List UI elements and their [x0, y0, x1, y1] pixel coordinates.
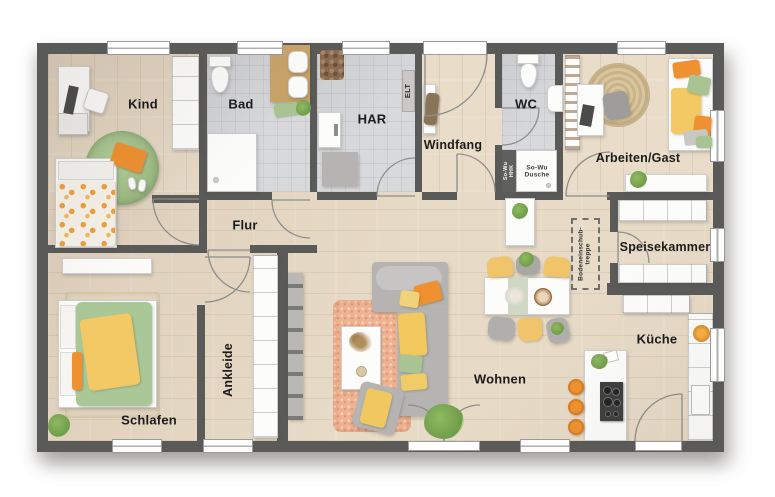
bad-shower: [207, 133, 257, 192]
window-kind: [107, 41, 170, 55]
label-wc: WC: [515, 98, 537, 113]
label-schlafen: Schlafen: [121, 414, 177, 429]
wall-har-windfang: [415, 54, 422, 192]
kind-bed-blanket: [57, 181, 115, 246]
har-washer-handle: [334, 124, 338, 136]
wohnen-media-panel: [288, 273, 303, 420]
label-har: HAR: [358, 113, 387, 128]
label-sowu-hhk: So-Wu HHK: [503, 162, 515, 180]
window-schlafen: [112, 439, 162, 453]
wohnen-pillow-yellow: [399, 290, 420, 308]
floorplan-canvas: KindBadHARWindfangWCArbeiten/GastFlurSpe…: [0, 0, 775, 497]
label-wohnen: Wohnen: [474, 373, 526, 388]
schlafen-shelf: [62, 258, 152, 274]
dining-bowl: [534, 288, 552, 306]
kueche-stool-3: [568, 419, 584, 435]
stove-knob-2: [613, 411, 619, 417]
label-flur: Flur: [232, 219, 257, 234]
wall-speisekammer-left-upper: [610, 200, 618, 232]
label-arbeiten-gast: Arbeiten/Gast: [596, 151, 681, 165]
entrance-door: [423, 41, 487, 55]
label-kind: Kind: [128, 98, 158, 113]
stove-burner-4: [613, 399, 621, 407]
label-speisekammer: Speisekammer: [620, 240, 711, 254]
wall-windfang-wc-upper: [495, 54, 502, 108]
kind-cabinet: [58, 113, 88, 135]
bad-shower-drain: [213, 177, 219, 183]
wall-kind-door-stub: [152, 195, 199, 203]
schlafen-pillow-1: [60, 305, 76, 349]
dining-flowers: [505, 286, 525, 306]
schlafen-throw: [79, 313, 141, 392]
terrace-double-door: [408, 441, 480, 451]
wall-bad-har: [310, 54, 317, 192]
wall-ankleide-wohnen: [277, 253, 288, 441]
kueche-door: [635, 441, 682, 451]
window-har: [342, 41, 390, 55]
kind-bed-pillow: [58, 161, 114, 180]
wall-arbeiten-bottom: [607, 192, 713, 200]
window-kueche: [710, 328, 725, 382]
arbeiten-chair: [601, 90, 631, 122]
dining-chair-4: [487, 316, 516, 342]
window-speisekammer: [710, 228, 725, 262]
label-windfang: Windfang: [424, 138, 482, 152]
window-arbeiten-right: [710, 110, 725, 162]
wohnen-pillow-yellow-2: [400, 373, 427, 391]
wall-bad-bottom: [207, 192, 272, 200]
window-bad: [237, 41, 283, 55]
window-ankleide: [203, 439, 253, 453]
label-kueche: Küche: [637, 333, 678, 348]
har-basket: [320, 50, 344, 80]
dining-chair-5: [517, 317, 543, 342]
kueche-stool-2: [568, 399, 584, 415]
kueche-counter-top: [622, 295, 690, 313]
kueche-sink: [691, 385, 710, 415]
arbeiten-pillow-green-2: [696, 136, 712, 148]
kueche-fruit-bowl: [693, 325, 710, 342]
schlafen-accent-pillow: [72, 352, 82, 390]
stove-burner-2: [612, 388, 620, 396]
wohnen-sofa-blanket: [398, 312, 428, 357]
wall-har-bottom: [317, 192, 377, 200]
wc-shower-drain: [546, 183, 551, 188]
wall-schlafen-ankleide: [197, 305, 205, 441]
ankleide-closet: [253, 255, 278, 438]
label-elt: ELT: [404, 84, 412, 98]
wohnen-pillow-green: [398, 354, 423, 374]
wall-speisekammer-bottom: [607, 283, 713, 295]
window-arbeiten: [617, 41, 666, 55]
dining-chair-3: [543, 255, 571, 278]
wall-flur-wohnen: [250, 245, 317, 253]
speisekammer-shelf-bottom: [618, 264, 707, 283]
speisekammer-shelf-top: [618, 200, 707, 221]
wall-windfang-bottom: [422, 192, 457, 200]
har-cabinet: [322, 152, 358, 186]
label-bad: Bad: [228, 98, 253, 113]
bad-sink-1: [288, 51, 308, 73]
label-bodeneinschubtreppe: Bodeneinschub- treppe: [578, 227, 593, 281]
stove-burner-3: [603, 397, 613, 407]
dining-chair-1: [486, 256, 514, 279]
wohnen-table-cup: [356, 366, 367, 377]
window-wohnen: [520, 439, 570, 453]
bad-sink-2: [288, 76, 308, 98]
wall-windfang-wc-lower: [495, 145, 502, 192]
wall-kind-bad: [199, 54, 207, 245]
wc-sink: [547, 85, 563, 112]
stove-knob-1: [605, 411, 611, 417]
kueche-stool-1: [568, 379, 584, 395]
kind-wardrobe: [172, 56, 199, 150]
label-ankleide: Ankleide: [221, 343, 235, 397]
stove-burner-1: [603, 386, 612, 395]
label-sowu-dusche: So-Wu Dusche: [525, 165, 550, 180]
